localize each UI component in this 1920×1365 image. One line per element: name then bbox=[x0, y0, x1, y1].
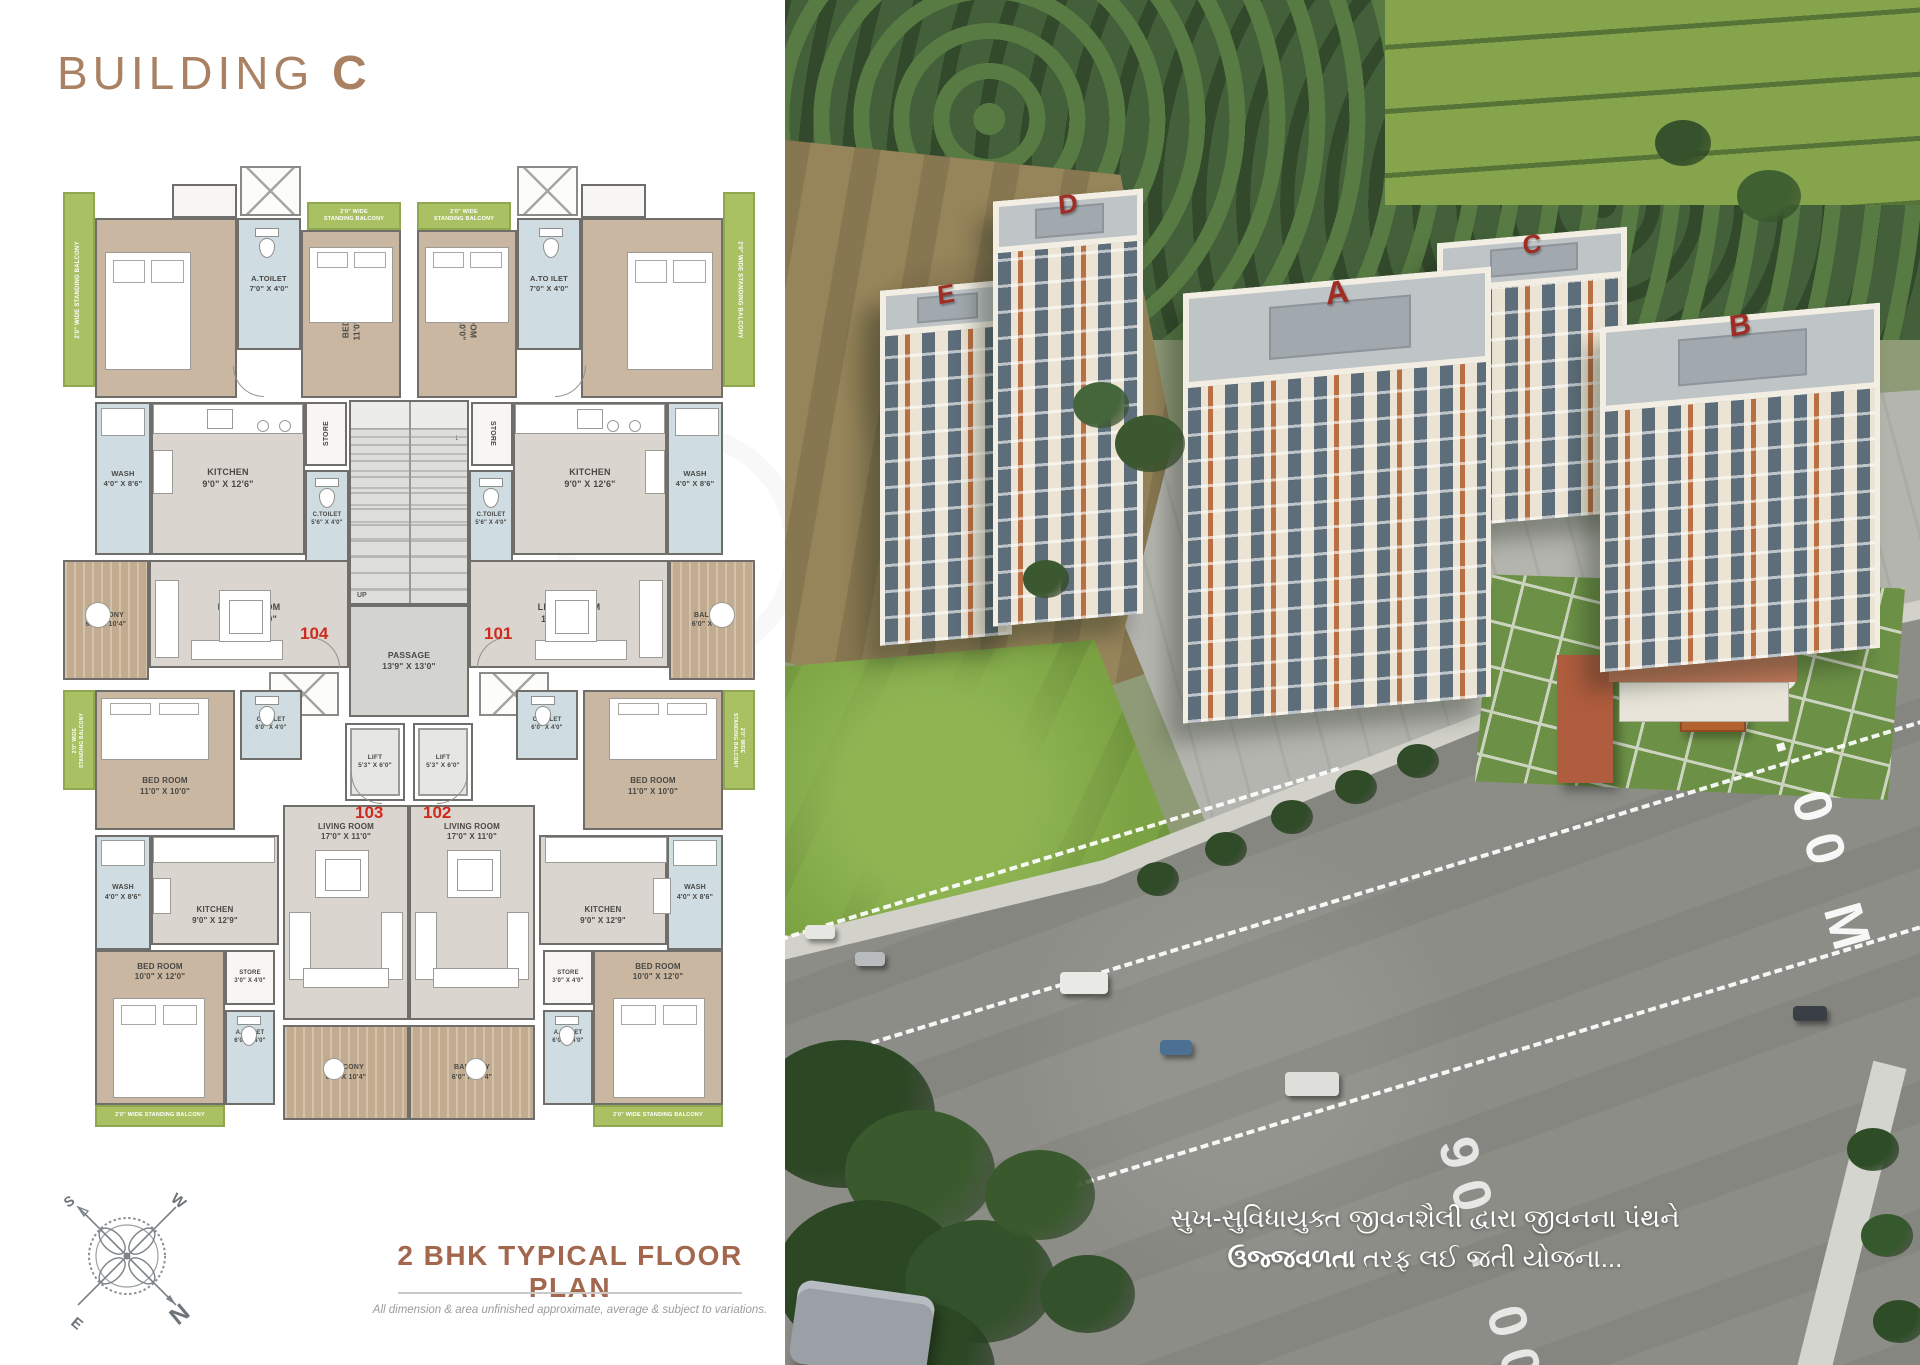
tree bbox=[1737, 170, 1801, 222]
furniture bbox=[153, 878, 171, 914]
round-table bbox=[257, 420, 269, 432]
room-label-lift-left: LIFT 5'3" X 6'0" bbox=[358, 754, 392, 771]
furniture bbox=[545, 837, 667, 863]
toilet-icon bbox=[555, 1016, 579, 1046]
bed bbox=[105, 252, 191, 370]
unit-number-102: 102 bbox=[423, 803, 451, 823]
toilet-bowl bbox=[543, 238, 559, 258]
round-table bbox=[709, 602, 735, 628]
pillow bbox=[354, 252, 386, 267]
room-label-wash-lower-right: WASH 4'0" X 8'6" bbox=[677, 883, 713, 901]
room-label-kitchen-lower-right: KITCHEN 9'0" X 12'9" bbox=[580, 905, 626, 926]
room-standing-balcony-bottom-right: 2'0" WIDE STANDING BALCONY bbox=[593, 1105, 723, 1127]
room-wardrobe-top-left bbox=[172, 184, 237, 218]
furniture bbox=[433, 968, 519, 988]
furniture bbox=[191, 640, 283, 660]
furniture bbox=[303, 968, 389, 988]
building-letter: C bbox=[332, 47, 369, 100]
tree bbox=[1847, 1128, 1899, 1171]
tree bbox=[1023, 560, 1069, 598]
tree bbox=[1115, 415, 1185, 472]
compass-north: N bbox=[165, 1299, 196, 1331]
room-label-bedroom-bottom-right: BED ROOM 10'0" X 12'0" bbox=[633, 962, 683, 983]
pillow bbox=[621, 1005, 655, 1025]
tower-facade bbox=[1183, 362, 1491, 724]
room-label-bedroom-lower-left: BED ROOM 11'0" X 10'0" bbox=[140, 776, 190, 797]
pillow bbox=[663, 1005, 697, 1025]
compass-east: E bbox=[67, 1314, 86, 1333]
building-letter-D: D bbox=[1057, 187, 1079, 221]
toilet-tank bbox=[539, 228, 563, 237]
room-label-wash-top-right: WASH 4'0" X 8'6" bbox=[676, 469, 715, 489]
tv-unit bbox=[545, 590, 597, 642]
toilet-icon bbox=[539, 228, 563, 258]
floor-plan-panel: BUILDING C 2'0" WIDE STANDING BALCONYBED… bbox=[0, 0, 785, 1365]
furniture bbox=[101, 840, 145, 866]
round-table bbox=[465, 1058, 487, 1080]
room-label-attached-toilet-top-left: A.TOILET 7'0" X 4'0" bbox=[250, 274, 289, 294]
room-label-store-bottom-right: STORE 3'0" X 4'0" bbox=[552, 970, 583, 986]
room-label-kitchen-top-right: KITCHEN 9'0" X 12'6" bbox=[564, 467, 615, 490]
toilet-tank bbox=[555, 1016, 579, 1025]
bed bbox=[425, 247, 509, 323]
toilet-tank bbox=[237, 1016, 261, 1025]
room-balcony-103: BALCONY 6'0" X 10'4" bbox=[283, 1025, 409, 1120]
room-store-bottom-right: STORE 3'0" X 4'0" bbox=[543, 950, 593, 1005]
toilet-bowl bbox=[259, 706, 275, 726]
toilet-icon bbox=[237, 1016, 261, 1046]
unit-number-101: 101 bbox=[484, 624, 512, 644]
building-letter-B: B bbox=[1728, 307, 1753, 344]
furniture bbox=[153, 837, 275, 863]
room-duct-top-left bbox=[240, 166, 301, 216]
unit-number-103: 103 bbox=[355, 803, 383, 823]
pillow bbox=[618, 703, 658, 716]
room-label-wash-lower-left: WASH 4'0" X 8'6" bbox=[105, 883, 141, 901]
pillow bbox=[317, 252, 349, 267]
pillow bbox=[673, 260, 705, 283]
bed bbox=[627, 252, 713, 370]
vehicle bbox=[1160, 1040, 1192, 1055]
toilet-icon bbox=[315, 478, 339, 508]
room-staircase: UP↓ bbox=[349, 400, 469, 605]
room-standing-balcony-top-left: 2'0" WIDE STANDING BALCONY bbox=[63, 192, 95, 387]
furniture bbox=[535, 640, 627, 660]
floor-plan: 2'0" WIDE STANDING BALCONYBED ROOM 12'0"… bbox=[57, 150, 761, 1135]
room-passage: PASSAGE 13'9" X 13'0" bbox=[349, 605, 469, 717]
room-label-standing-balcony-top-left: 2'0" WIDE STANDING BALCONY bbox=[75, 241, 83, 338]
caption-line-2-bold: ઉજ્જવળતા bbox=[1228, 1243, 1356, 1273]
room-duct-top-right bbox=[517, 166, 578, 216]
room-label-living-room-103: LIVING ROOM 17'0" X 11'0" bbox=[318, 822, 374, 843]
plan-title: 2 BHK TYPICAL FLOOR PLAN bbox=[370, 1240, 770, 1304]
tv-unit bbox=[315, 850, 369, 898]
furniture bbox=[675, 408, 719, 436]
page-title: BUILDING C bbox=[57, 46, 369, 101]
furniture bbox=[639, 580, 663, 658]
title-divider bbox=[398, 1292, 742, 1294]
room-label-kitchen-lower-left: KITCHEN 9'0" X 12'9" bbox=[192, 905, 238, 926]
building-letter-A: A bbox=[1324, 272, 1350, 313]
room-label-bedroom-lower-right: BED ROOM 11'0" X 10'0" bbox=[628, 776, 678, 797]
room-store-top-left: STORE bbox=[305, 402, 347, 466]
brochure-page: BUILDING C 2'0" WIDE STANDING BALCONYBED… bbox=[0, 0, 1920, 1365]
round-table bbox=[323, 1058, 345, 1080]
room-label-wash-top-left: WASH 4'0" X 8'6" bbox=[104, 469, 143, 489]
toilet-tank bbox=[255, 228, 279, 237]
room-label-standing-balcony-mid-right: 2'0" WIDE STANDING BALCONY bbox=[733, 712, 746, 767]
room-standing-balcony-top-mid-left: 2'0" WIDE STANDING BALCONY bbox=[307, 202, 401, 230]
caption-line-1: સુખ-સુવિધાયુક્ત જીવનશૈલી દ્વારા જીવનના પ… bbox=[1115, 1198, 1735, 1238]
pillow bbox=[667, 703, 707, 716]
toilet-icon bbox=[531, 696, 555, 726]
room-label-attached-toilet-top-right: A.TO ILET 7'0" X 4'0" bbox=[530, 274, 569, 294]
room-label-standing-balcony-top-mid-right: 2'0" WIDE STANDING BALCONY bbox=[434, 209, 494, 223]
room-standing-balcony-mid-left: 2'0" WIDE STANDING BALCONY bbox=[63, 690, 95, 790]
furniture bbox=[645, 450, 665, 494]
bed bbox=[609, 698, 717, 760]
building-tower-B: B bbox=[1600, 303, 1880, 672]
room-label-store-top-left: STORE bbox=[321, 422, 330, 447]
room-store-top-right: STORE bbox=[471, 402, 513, 466]
furniture bbox=[153, 450, 173, 494]
vehicle bbox=[855, 952, 885, 966]
furniture bbox=[653, 878, 671, 914]
round-table bbox=[279, 420, 291, 432]
room-standing-balcony-bottom-left: 2'0" WIDE STANDING BALCONY bbox=[95, 1105, 225, 1127]
bed bbox=[309, 247, 393, 323]
room-label-standing-balcony-bottom-left: 2'0" WIDE STANDING BALCONY bbox=[115, 1112, 205, 1119]
bed bbox=[101, 698, 209, 760]
caption-line-2: ઉજ્જવળતા તરફ લઈ જતી યોજના... bbox=[1115, 1238, 1735, 1278]
room-label-common-toilet-top-left: C.TOILET 5'6" X 4'0" bbox=[311, 512, 342, 528]
room-label-bedroom-bottom-left: BED ROOM 10'0" X 12'0" bbox=[135, 962, 185, 983]
building-letter-C: C bbox=[1521, 228, 1542, 262]
room-label-passage: PASSAGE 13'9" X 13'0" bbox=[382, 650, 435, 672]
toilet-bowl bbox=[241, 1026, 257, 1046]
stair-divider bbox=[409, 402, 411, 603]
pillow bbox=[113, 260, 145, 283]
toilet-tank bbox=[479, 478, 503, 487]
room-label-living-room-102: LIVING ROOM 17'0" X 11'0" bbox=[444, 822, 500, 843]
furniture bbox=[101, 408, 145, 436]
room-label-store-top-right: STORE bbox=[487, 422, 496, 447]
pillow bbox=[151, 260, 183, 283]
toilet-tank bbox=[255, 696, 279, 705]
room-standing-balcony-top-right: 2'0" WIDE STANDING BALCONY bbox=[723, 192, 755, 387]
toilet-bowl bbox=[259, 238, 275, 258]
stairs-arrow-icon: ↓ bbox=[455, 432, 460, 442]
compass-west: W bbox=[167, 1190, 189, 1213]
toilet-bowl bbox=[319, 488, 335, 508]
toilet-icon bbox=[255, 696, 279, 726]
tree bbox=[1873, 1300, 1920, 1343]
toilet-tank bbox=[531, 696, 555, 705]
building-tower-A: A bbox=[1183, 267, 1491, 724]
pillow bbox=[163, 1005, 197, 1025]
tree bbox=[985, 1150, 1095, 1240]
furniture bbox=[207, 409, 233, 429]
room-label-standing-balcony-bottom-right: 2'0" WIDE STANDING BALCONY bbox=[613, 1112, 703, 1119]
tower-facade bbox=[1600, 388, 1880, 672]
tv-unit bbox=[219, 590, 271, 642]
room-wardrobe-top-right bbox=[581, 184, 646, 218]
pillow bbox=[159, 703, 199, 716]
room-label-standing-balcony-top-mid-left: 2'0" WIDE STANDING BALCONY bbox=[324, 209, 384, 223]
room-standing-balcony-top-mid-right: 2'0" WIDE STANDING BALCONY bbox=[417, 202, 511, 230]
pillow bbox=[635, 260, 667, 283]
aerial-rendering: 90 . 00 M 90 . 00 M સુખ-સુવિધાયુક્ત જીવન… bbox=[785, 0, 1920, 1365]
tree bbox=[1655, 120, 1711, 166]
entrance-gate-doors bbox=[1619, 682, 1789, 722]
unit-number-104: 104 bbox=[300, 624, 328, 644]
pillow bbox=[470, 252, 502, 267]
tree bbox=[1073, 382, 1129, 428]
vehicle bbox=[1285, 1072, 1339, 1096]
room-store-bottom-left: STORE 3'0" X 4'0" bbox=[225, 950, 275, 1005]
toilet-bowl bbox=[535, 706, 551, 726]
door-arc bbox=[233, 366, 264, 397]
room-standing-balcony-mid-right: 2'0" WIDE STANDING BALCONY bbox=[723, 690, 755, 790]
furniture bbox=[673, 840, 717, 866]
room-label-common-toilet-top-right: C.TOILET 5'6" X 4'0" bbox=[475, 512, 506, 528]
vehicle bbox=[1793, 1006, 1827, 1021]
bed bbox=[113, 998, 205, 1098]
room-label-store-bottom-left: STORE 3'0" X 4'0" bbox=[234, 970, 265, 986]
room-label-standing-balcony-top-right: 2'0" WIDE STANDING BALCONY bbox=[735, 241, 743, 338]
room-label-standing-balcony-mid-left: 2'0" WIDE STANDING BALCONY bbox=[73, 712, 86, 767]
toilet-tank bbox=[315, 478, 339, 487]
caption-line-2-rest: તરફ લઈ જતી યોજના... bbox=[1355, 1243, 1622, 1273]
compass-rose: S W E N bbox=[52, 1178, 202, 1338]
pillow bbox=[121, 1005, 155, 1025]
pillow bbox=[110, 703, 150, 716]
round-table bbox=[607, 420, 619, 432]
vehicle bbox=[805, 925, 835, 939]
bed bbox=[613, 998, 705, 1098]
round-table bbox=[85, 602, 111, 628]
disclaimer-text: All dimension & area unfinished approxim… bbox=[330, 1304, 810, 1316]
furniture bbox=[155, 580, 179, 658]
compass-south: S bbox=[61, 1192, 78, 1210]
vehicle bbox=[1060, 972, 1108, 994]
room-label-kitchen-top-left: KITCHEN 9'0" X 12'6" bbox=[202, 467, 253, 490]
stairs-up-label: UP bbox=[357, 592, 367, 599]
green-field-top-right bbox=[1385, 0, 1920, 205]
entrance-gate-pylon bbox=[1557, 655, 1613, 783]
toilet-icon bbox=[255, 228, 279, 258]
tree bbox=[1861, 1214, 1913, 1257]
building-letter-E: E bbox=[936, 278, 956, 312]
toilet-bowl bbox=[559, 1026, 575, 1046]
round-table bbox=[629, 420, 641, 432]
furniture bbox=[577, 409, 603, 429]
pillow bbox=[433, 252, 465, 267]
room-label-lift-right: LIFT 5'3" X 6'0" bbox=[426, 754, 460, 771]
tv-unit bbox=[447, 850, 501, 898]
marketing-caption: સુખ-સુવિધાયુક્ત જીવનશૈલી દ્વારા જીવનના પ… bbox=[1115, 1198, 1735, 1279]
toilet-bowl bbox=[483, 488, 499, 508]
toilet-icon bbox=[479, 478, 503, 508]
